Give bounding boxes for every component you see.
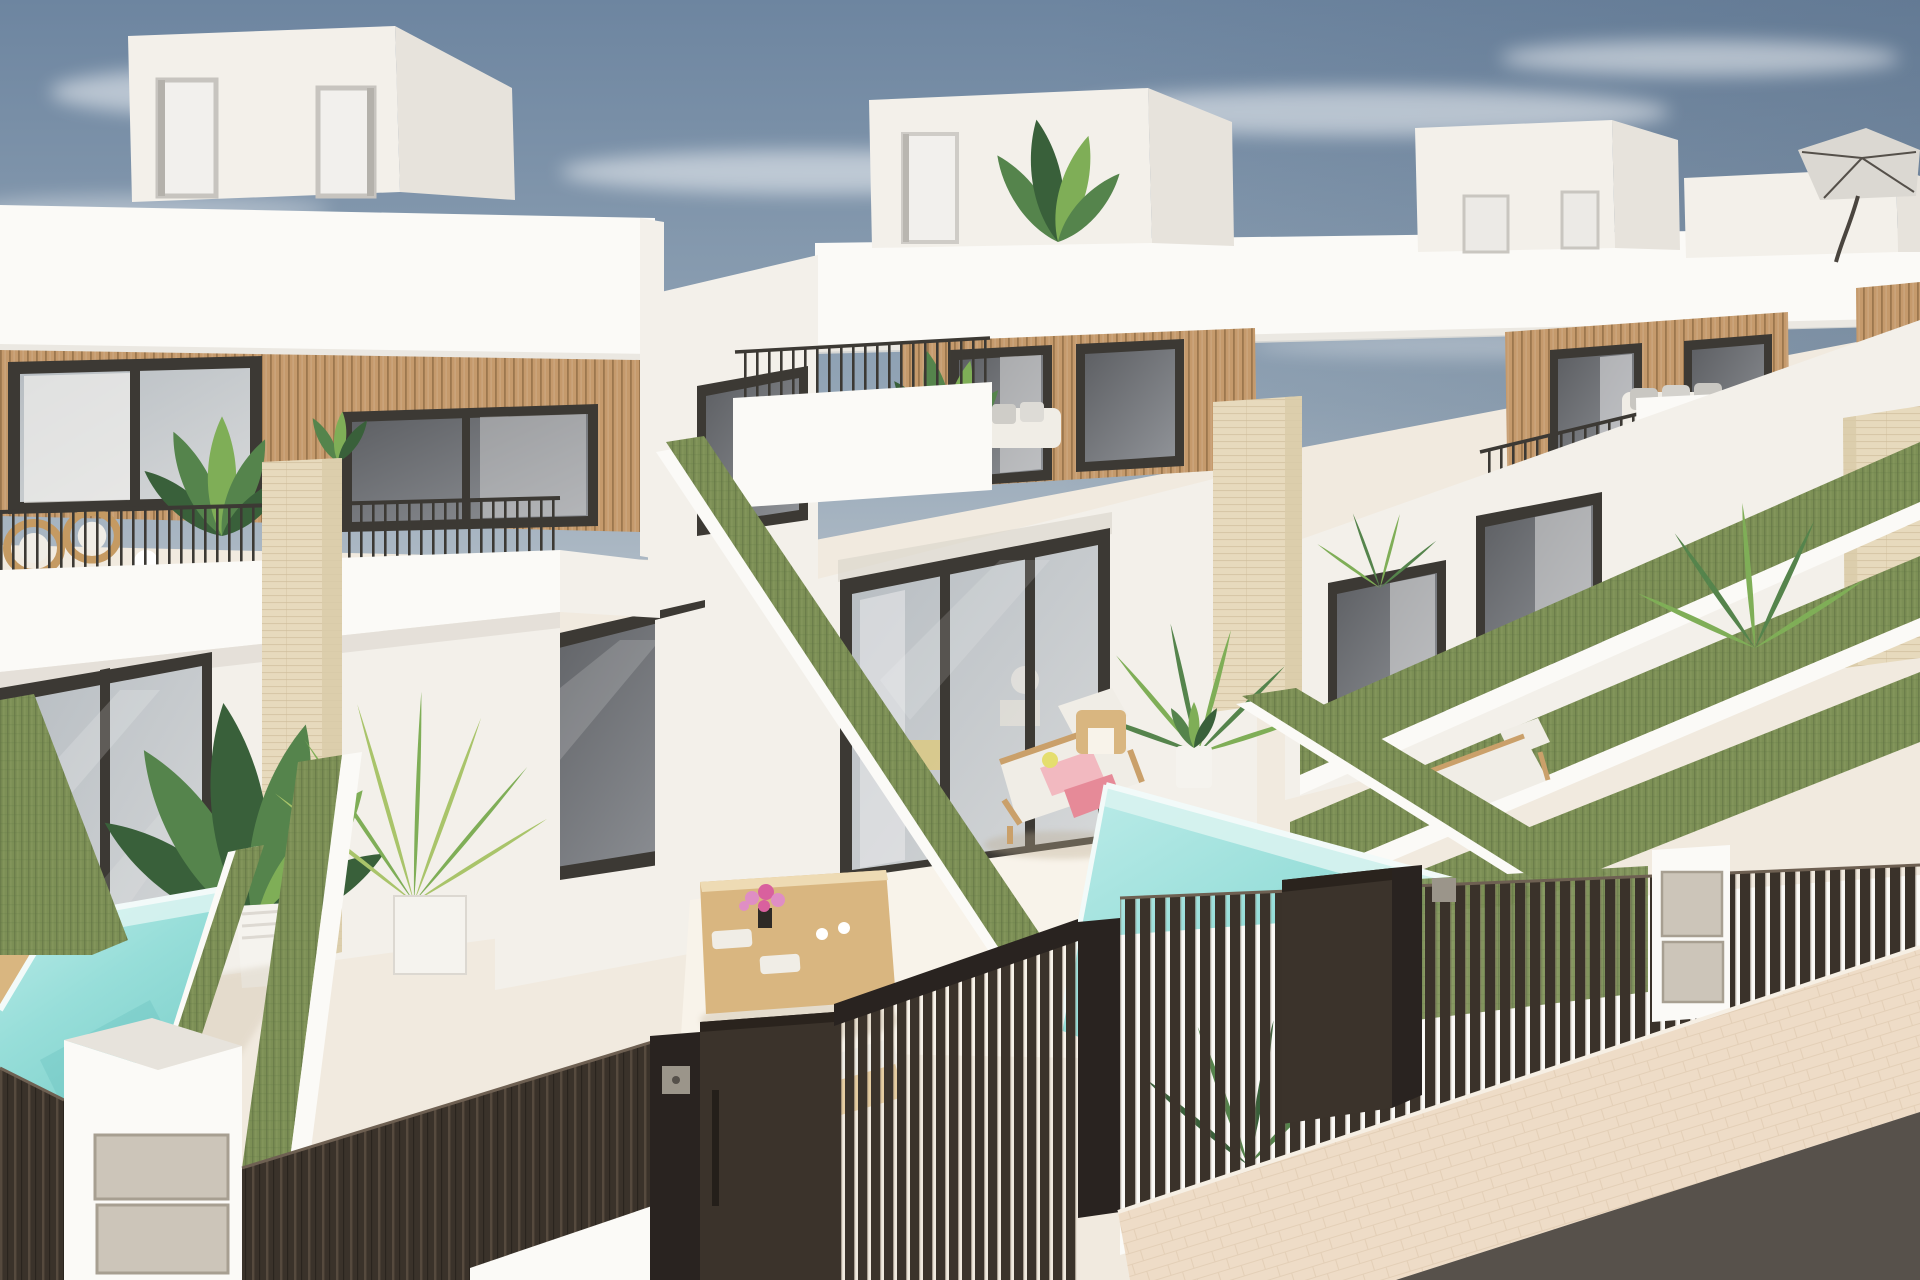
balcony-parapet-side xyxy=(560,550,660,618)
utility-boxes xyxy=(95,1135,228,1273)
upper-window xyxy=(1076,339,1184,472)
gate-post xyxy=(1392,865,1422,1108)
travertine-pillar-shade xyxy=(1285,396,1302,702)
balcony-sofa xyxy=(985,402,1061,448)
gate-door-solid xyxy=(700,1012,834,1280)
boundary-fence xyxy=(0,1068,64,1280)
pedestrian-gate xyxy=(1282,868,1392,1124)
villa-render xyxy=(0,0,1920,1280)
roof-parapet-band xyxy=(0,205,655,362)
utility-boxes xyxy=(1662,872,1723,1002)
side-cap-wall xyxy=(640,218,664,560)
render-canvas xyxy=(0,0,1920,1280)
plant-pot-cube xyxy=(394,896,466,974)
balcony-parapet xyxy=(733,382,992,508)
roof-box-door xyxy=(903,134,957,242)
sun-hat xyxy=(1042,752,1058,768)
mailbox-pillar xyxy=(1652,845,1730,1022)
gate-post xyxy=(1078,918,1120,1218)
mailbox-pillar xyxy=(64,1018,242,1280)
gate-keypad xyxy=(1432,878,1456,902)
roof-box-side xyxy=(1612,120,1680,250)
